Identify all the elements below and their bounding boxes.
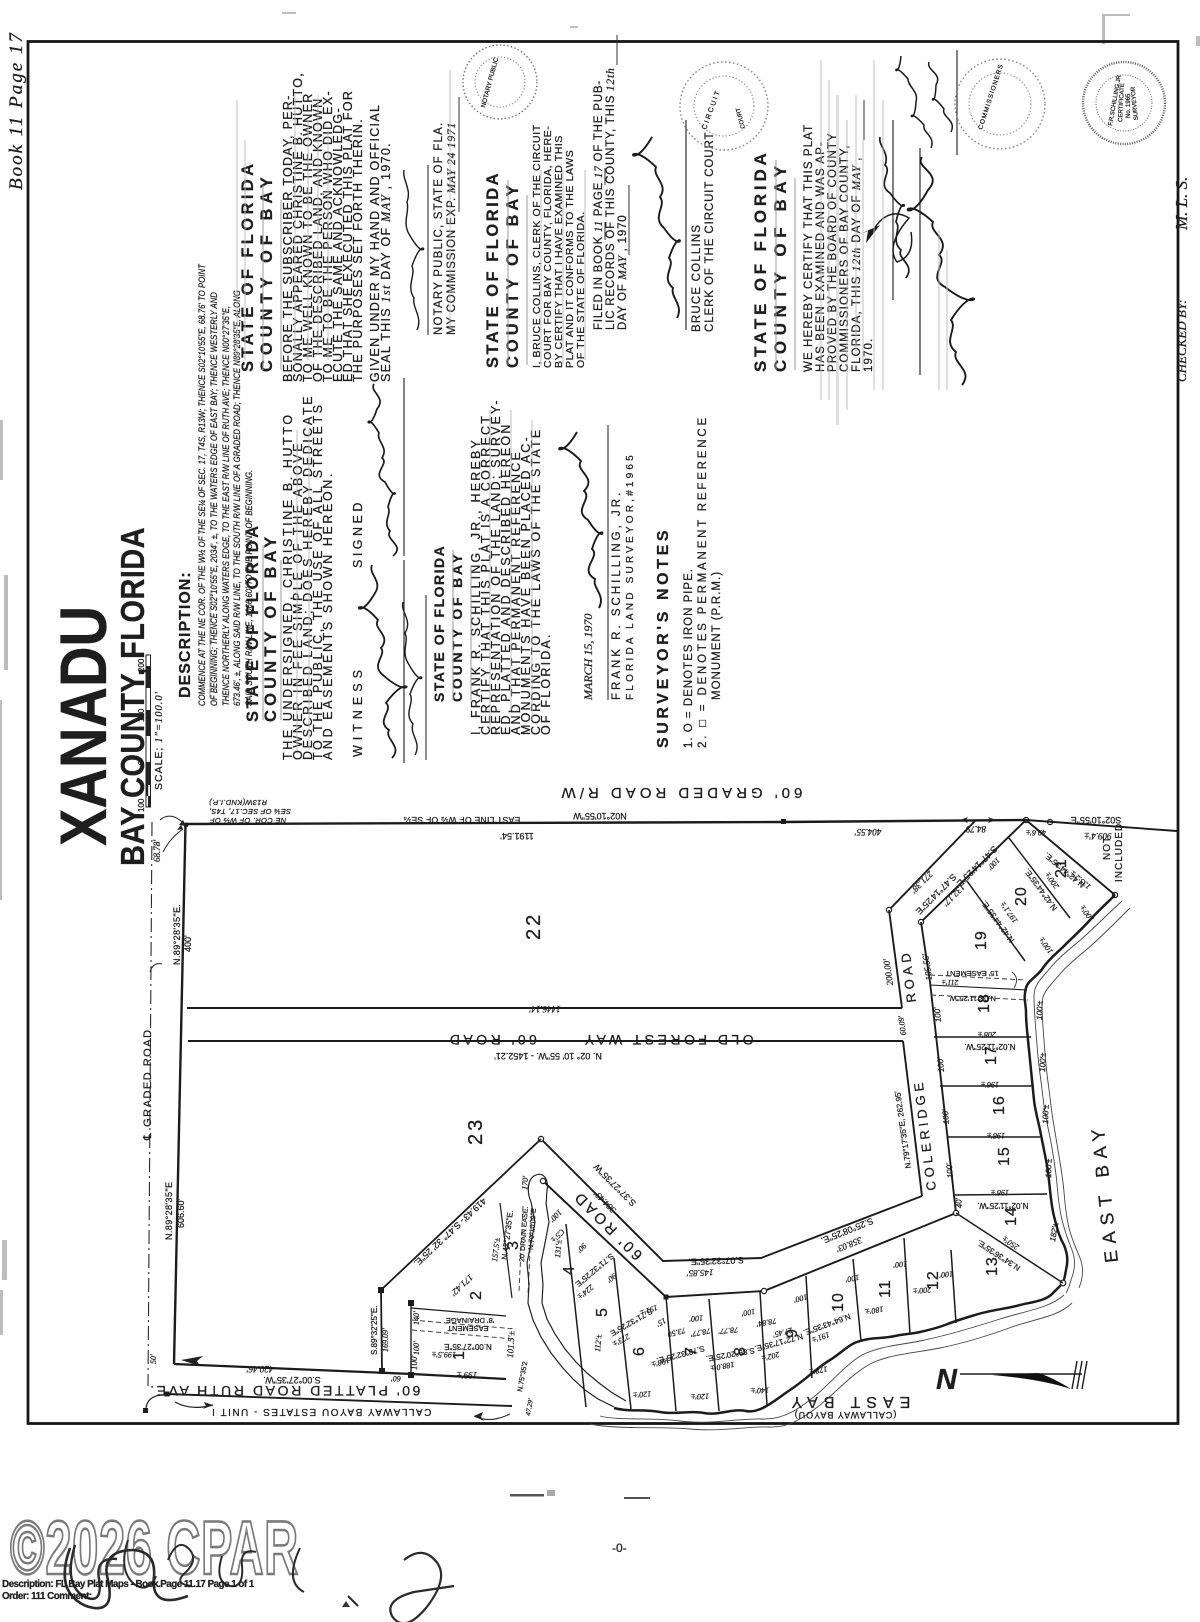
svg-text:BRUCE COLLINS: BRUCE COLLINS	[691, 224, 703, 332]
svg-text:FILED IN BOOK 11 PAGE 17 OF TH: FILED IN BOOK 11 PAGE 17 OF THE PUB-	[593, 80, 605, 330]
svg-text:R13W(KND.I.P.): R13W(KND.I.P.)	[209, 798, 267, 807]
svg-text:N.00°27'35"E: N.00°27'35"E	[444, 1342, 492, 1351]
svg-text:-0-: -0-	[612, 1541, 627, 1555]
svg-text:DESCRIPTION:: DESCRIPTION:	[177, 571, 194, 698]
svg-text:420.46': 420.46'	[246, 1364, 274, 1374]
svg-text:MY COMMISSION EXP. MAY 24 1971: MY COMMISSION EXP. MAY 24 1971	[446, 122, 458, 335]
svg-text:100': 100'	[412, 1341, 421, 1355]
svg-text:196'±: 196'±	[980, 1080, 999, 1089]
svg-text:SIGNED: SIGNED	[351, 499, 365, 568]
svg-text:OF BEGINNING; THENCE S02°10: OF BEGINNING; THENCE S02°10'55"E, 2034',…	[210, 292, 220, 706]
svg-text:20: 20	[1013, 886, 1030, 906]
svg-text:NOT: NOT	[1102, 836, 1113, 860]
svg-text:10: 10	[830, 1292, 847, 1312]
svg-text:OF FLORIDA.: OF FLORIDA.	[539, 632, 553, 735]
svg-text:FRANK R. SCHILLING, JR.: FRANK R. SCHILLING, JR.	[611, 490, 623, 700]
svg-text:211'±: 211'±	[942, 978, 958, 987]
svg-text:100'±: 100'±	[1044, 1158, 1054, 1178]
svg-text:100'±: 100'±	[1038, 1052, 1048, 1072]
svg-text:199'±: 199'±	[457, 1370, 477, 1380]
svg-text:16: 16	[991, 1095, 1008, 1115]
svg-text:DAY OF MAY , 1970: DAY OF MAY , 1970	[617, 215, 629, 330]
svg-text:404.55': 404.55'	[854, 827, 882, 837]
svg-text:'8' DRAINAGE: '8' DRAINAGE	[446, 1316, 494, 1325]
svg-text:COUNTY OF BAY: COUNTY OF BAY	[449, 551, 465, 702]
svg-text:THE PURPOSES SET FORTH THE: THE PURPOSES SET FORTH THERIN.	[351, 118, 365, 382]
svg-text:120'±: 120'±	[690, 1392, 709, 1402]
svg-text:1191.54': 1191.54'	[500, 831, 534, 841]
svg-text:68.78': 68.78'	[152, 839, 162, 862]
svg-text:EAST BAY: EAST BAY	[786, 1393, 911, 1410]
svg-text:112'±: 112'±	[593, 1333, 604, 1352]
svg-text:COUNTY OF BAY: COUNTY OF BAY	[258, 172, 276, 372]
svg-text:SURVEYOR'S NOTES: SURVEYOR'S NOTES	[655, 527, 672, 748]
svg-text:140': 140'	[412, 1311, 421, 1325]
svg-text:EASEMENT: EASEMENT	[447, 1324, 489, 1333]
svg-text:STATE OF FLORIDA: STATE OF FLORIDA	[244, 523, 262, 722]
svg-text:STATE OF FLORIDA: STATE OF FLORIDA	[751, 149, 770, 372]
svg-text:STATE OF FLORIDA: STATE OF FLORIDA	[484, 171, 502, 368]
svg-text:100': 100'	[936, 1057, 946, 1073]
svg-text:145.85': 145.85'	[686, 1268, 714, 1279]
svg-text:15' EASEMENT: 15' EASEMENT	[945, 969, 999, 978]
svg-text:1446.14': 1446.14'	[528, 1004, 560, 1014]
svg-text:2: 2	[468, 1290, 485, 1300]
svg-text:EAST LINE OF W½ OF SE¼: EAST LINE OF W½ OF SE¼	[403, 815, 520, 825]
svg-text:50': 50'	[149, 1354, 158, 1364]
svg-text:100': 100'	[945, 1163, 955, 1179]
svg-text:100': 100'	[941, 1109, 951, 1125]
svg-text:STATE OF FLORIDA: STATE OF FLORIDA	[239, 161, 257, 372]
svg-text:N.89°28'35"E.: N.89°28'35"E.	[172, 904, 182, 965]
svg-text:COUNTY OF BAY: COUNTY OF BAY	[771, 160, 790, 372]
svg-text:6: 6	[631, 1346, 648, 1356]
svg-text:60' PLATTED ROAD RUTH AVE.: 60' PLATTED ROAD RUTH AVE.	[148, 1383, 421, 1399]
svg-text:100: 100	[137, 708, 146, 722]
svg-text:N02°10'55"W: N02°10'55"W	[573, 811, 627, 821]
svg-text:101.5'±: 101.5'±	[505, 1330, 516, 1358]
svg-text:17: 17	[983, 1045, 1000, 1065]
svg-text:13: 13	[984, 1256, 1001, 1276]
svg-text:140'±: 140'±	[750, 1386, 769, 1396]
svg-text:N. 02° 10' 55"W. - 1452.21': N. 02° 10' 55"W. - 1452.21'	[494, 1051, 602, 1061]
svg-text:100'±: 100'±	[1035, 1000, 1045, 1020]
svg-text:NOTARY PUBLIC, STATE OF FLA.: NOTARY PUBLIC, STATE OF FLA.	[433, 122, 445, 335]
svg-text:200: 200	[137, 658, 146, 672]
svg-text:CALLAWAY BAYOU ESTATES - UNI: CALLAWAY BAYOU ESTATES - UNIT I	[211, 1406, 432, 1417]
svg-text:15: 15	[996, 1146, 1013, 1166]
svg-text:COMMISSIONERS OF BAY COUNTY: COMMISSIONERS OF BAY COUNTY,	[839, 144, 851, 372]
svg-text:23: 23	[465, 1117, 487, 1145]
svg-text:N: N	[936, 1364, 958, 1396]
svg-text:18: 18	[976, 993, 993, 1013]
svg-text:CLERK OF THE CIRCUIT COURT: CLERK OF THE CIRCUIT COURT	[704, 132, 716, 332]
svg-text:THENCE NORTHERLY ALONG WATER: THENCE NORTHERLY ALONG WATERS EDGE, TO T…	[222, 306, 232, 706]
svg-text:FLORIDA LAND SURVEYOR,#1965: FLORIDA LAND SURVEYOR,#1965	[625, 452, 636, 700]
svg-text:170': 170'	[520, 1175, 530, 1190]
svg-text:OLD FOREST WAY 60' ROA: OLD FOREST WAY 60' ROAD	[446, 1032, 753, 1048]
svg-text:(CALLAWAY BAYOU): (CALLAWAY BAYOU)	[794, 1410, 897, 1420]
svg-text:100': 100'	[409, 1354, 419, 1371]
svg-text:Order: 111 Comment:: Order: 111 Comment:	[2, 1591, 92, 1602]
svg-text:1. O = DENOTES IRON PIPE.: 1. O = DENOTES IRON PIPE.	[683, 568, 695, 748]
svg-text:100': 100'	[689, 1313, 704, 1323]
svg-text:S.07°32'35"E.: S.07°32'35"E.	[688, 1255, 744, 1267]
svg-text:22: 22	[523, 912, 545, 940]
svg-text:WE HEREBY CERTIFY THAT THI: WE HEREBY CERTIFY THAT THIS PLAT	[803, 124, 815, 372]
svg-text:XANADU: XANADU	[47, 606, 120, 846]
svg-text:COMMENCE AT THE NE COR. OF T: COMMENCE AT THE NE COR. OF THE W½ OF THE…	[198, 263, 208, 706]
svg-text:STATE OF FLORIDA: STATE OF FLORIDA	[431, 545, 447, 702]
svg-text:1: 1	[451, 1350, 468, 1360]
svg-text:120'±: 120'±	[632, 1389, 651, 1400]
svg-text:606.60': 606.60'	[176, 1198, 186, 1228]
svg-text:AND EASEMENTS SHOWN HEREON.: AND EASEMENTS SHOWN HEREON.	[321, 471, 335, 760]
svg-text:4: 4	[561, 1265, 578, 1275]
svg-text:2. □ = DENOTES PERMANENT R: 2. □ = DENOTES PERMANENT REFERENCE	[697, 415, 709, 748]
svg-text:INCLUDED: INCLUDED	[1114, 823, 1125, 882]
svg-text:78.77': 78.77'	[718, 1325, 739, 1336]
svg-text:M. L. S.: M. L. S.	[1172, 177, 1191, 231]
svg-text:3: 3	[505, 1240, 522, 1250]
svg-text:SEAL THIS 1st DAY OF MAY: SEAL THIS 1st DAY OF MAY , 1970.	[379, 142, 393, 382]
svg-text:℄ GRADED ROAD: ℄ GRADED ROAD	[142, 1028, 154, 1141]
svg-text:100': 100'	[939, 1269, 954, 1279]
svg-text:100: 100	[137, 798, 146, 812]
svg-text:208'±: 208'±	[977, 1030, 996, 1039]
svg-text:400': 400'	[183, 935, 193, 952]
svg-text:MONUMENT (P.R.M.): MONUMENT (P.R.M.)	[711, 571, 723, 700]
svg-text:169.09': 169.09'	[381, 1328, 390, 1352]
svg-text:CHECKED BY:: CHECKED BY:	[1174, 299, 1189, 382]
svg-text:5: 5	[594, 1307, 611, 1317]
svg-text:40': 40'	[954, 1197, 964, 1209]
svg-text:100': 100'	[893, 1259, 908, 1269]
svg-text:100'±: 100'±	[1041, 1104, 1051, 1124]
svg-text:60': 60'	[391, 1374, 401, 1383]
svg-text:Book 11 Page 17: Book 11 Page 17	[6, 31, 27, 190]
svg-text:11: 11	[877, 1279, 894, 1298]
svg-text:COUNTY OF BAY: COUNTY OF BAY	[504, 181, 522, 368]
svg-text:SE¼ OF SEC.17, T4S,: SE¼ OF SEC.17, T4S,	[209, 807, 291, 816]
svg-text:21: 21	[1053, 858, 1070, 878]
svg-text:N.89°28'35"E: N.89°28'35"E	[164, 1182, 174, 1240]
svg-text:100': 100'	[933, 1007, 943, 1023]
svg-text:19: 19	[973, 930, 990, 950]
svg-text:14: 14	[1003, 1206, 1020, 1226]
svg-text:MARCH 15, 1970: MARCH 15, 1970	[581, 614, 595, 701]
svg-text:200'±: 200'±	[912, 1285, 931, 1296]
svg-text:49.6'±: 49.6'±	[1025, 828, 1046, 837]
svg-text:198'±: 198'±	[986, 1131, 1005, 1140]
svg-text:WITNESS: WITNESS	[351, 665, 365, 757]
svg-text:SCALE; 1"=100.0': SCALE; 1"=100.0'	[153, 691, 165, 790]
svg-text:LIC RECORDS OF THIS COUNTY, TH: LIC RECORDS OF THIS COUNTY, THIS 12th	[605, 67, 617, 330]
svg-text:198'±: 198'±	[990, 1188, 1009, 1197]
svg-text:S.89°32'25"E.: S.89°32'25"E.	[370, 1306, 379, 1355]
svg-text:COUNTY OF BAY: COUNTY OF BAY	[262, 533, 280, 722]
svg-text:0: 0	[137, 760, 146, 765]
svg-text:Description: FL Bay Plat Maps: Description: FL Bay Plat Maps - Book.Pag…	[2, 1579, 255, 1590]
svg-text:60' GRADED ROAD R/W: 60' GRADED ROAD R/W	[558, 784, 803, 801]
